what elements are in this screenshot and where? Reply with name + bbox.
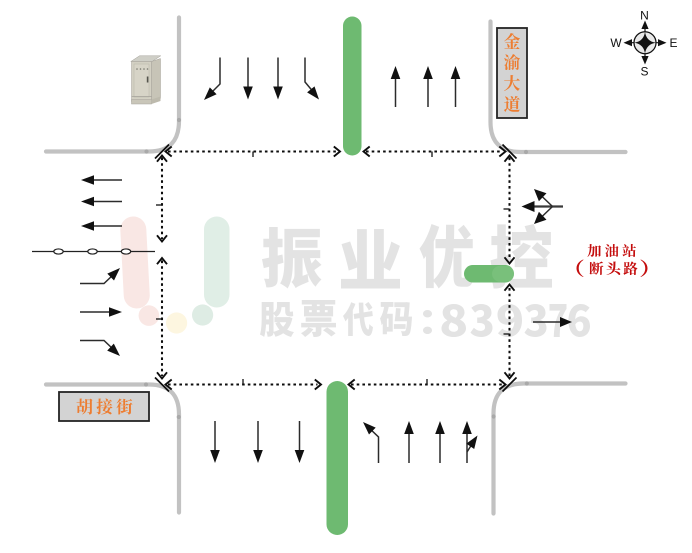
svg-text:E: E xyxy=(669,36,677,50)
svg-text:S: S xyxy=(640,65,648,79)
svg-text:W: W xyxy=(610,36,622,50)
svg-text:N: N xyxy=(640,9,649,23)
